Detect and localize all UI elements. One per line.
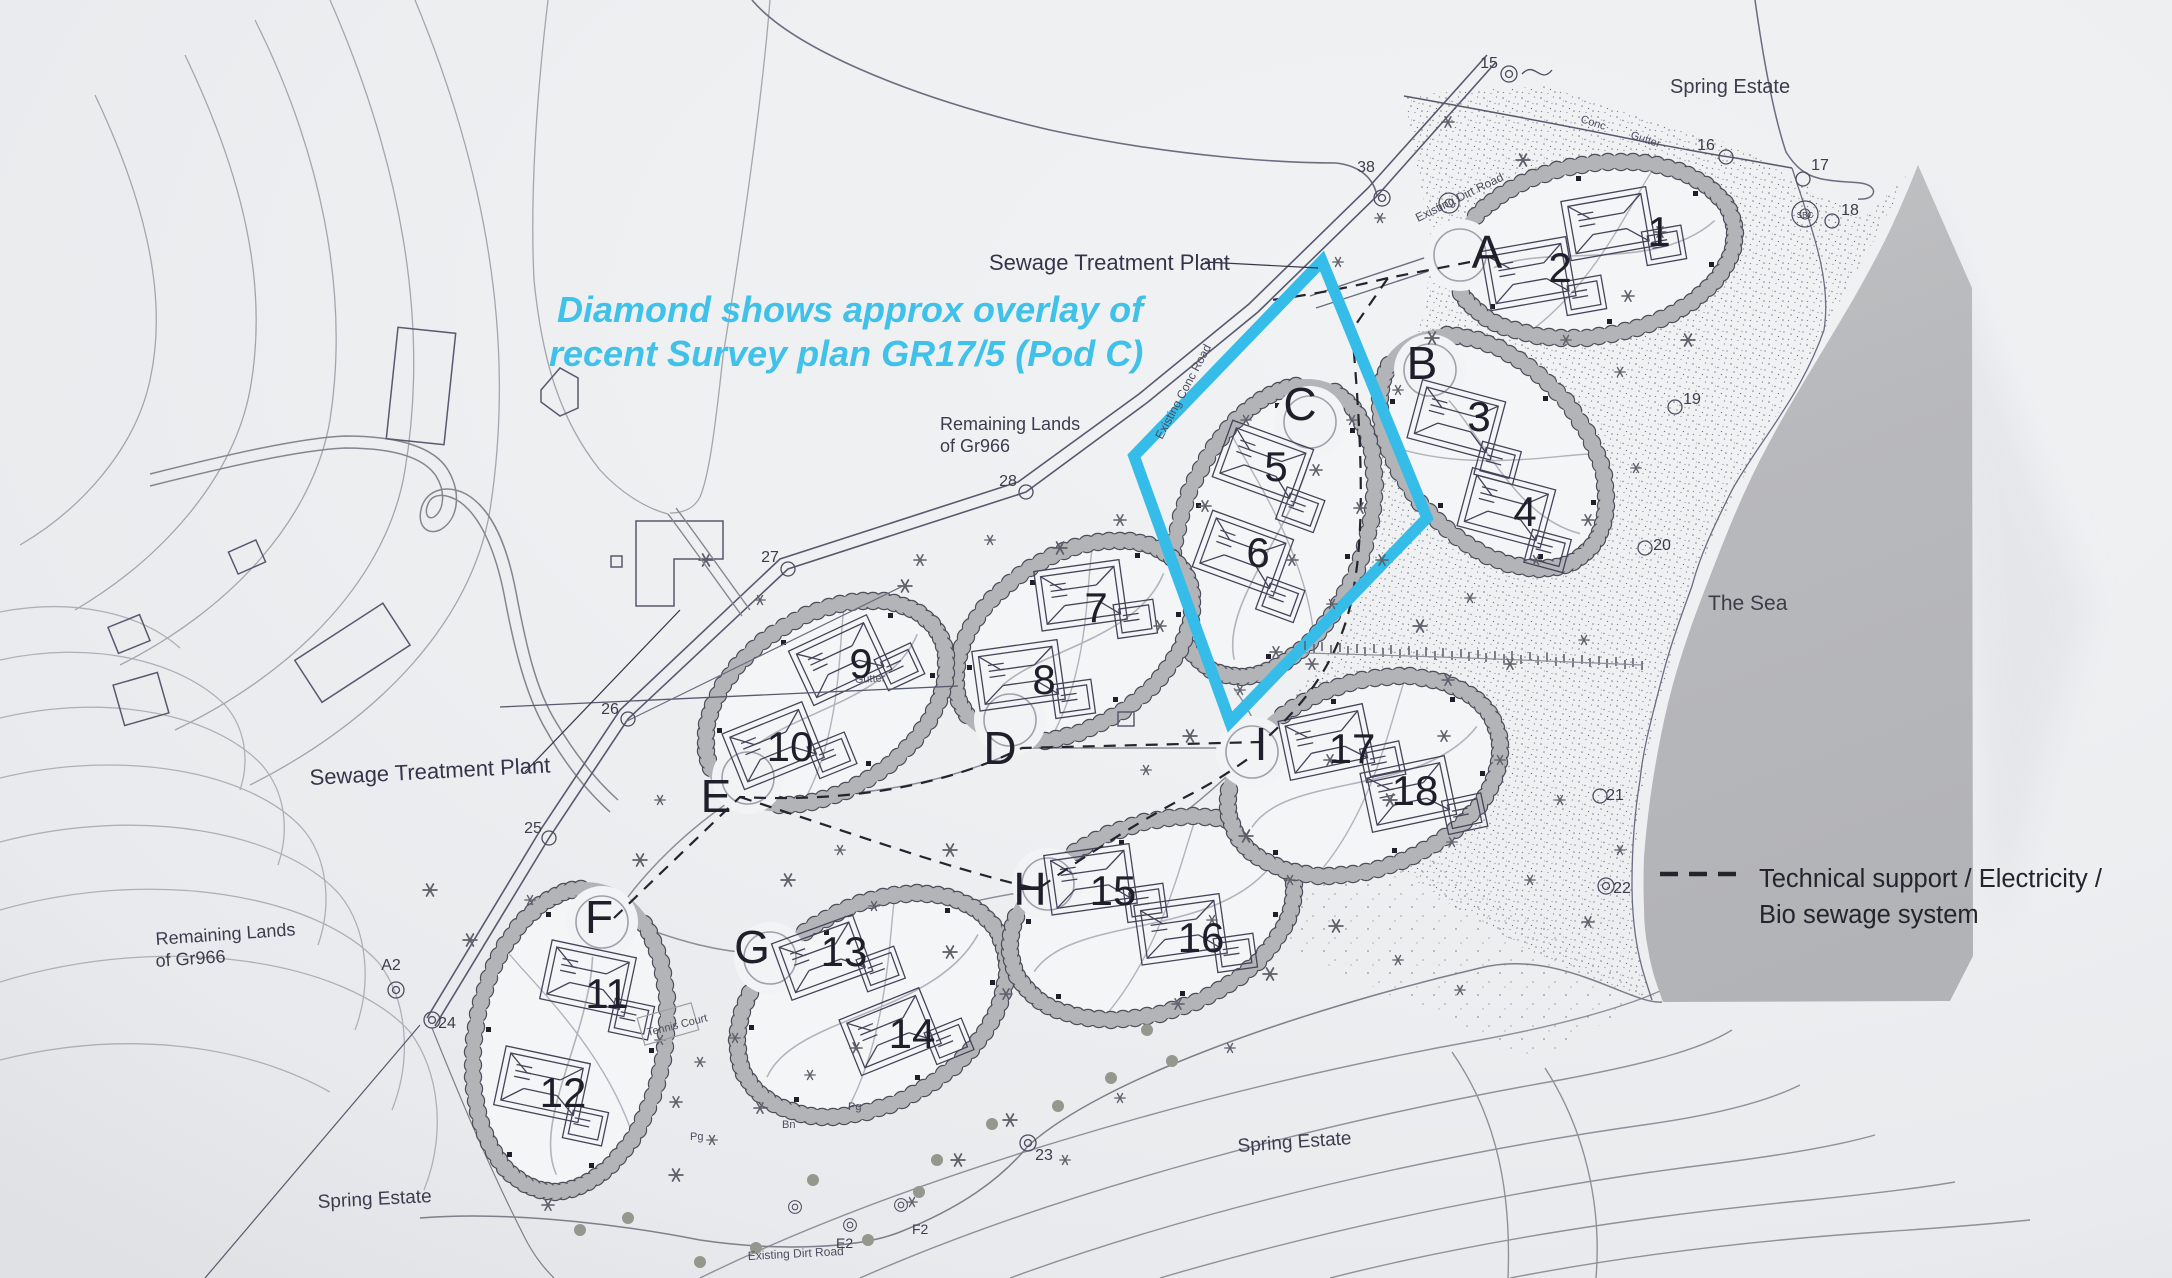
svg-text:D: D (983, 722, 1016, 774)
svg-text:E2: E2 (836, 1235, 853, 1251)
svg-text:H: H (1013, 863, 1046, 915)
svg-text:A: A (1472, 226, 1503, 278)
svg-text:F2: F2 (912, 1221, 929, 1237)
svg-text:20: 20 (1653, 537, 1671, 554)
svg-text:8: 8 (1032, 656, 1055, 703)
svg-text:28: 28 (999, 473, 1017, 490)
svg-text:Remaining Lands: Remaining Lands (940, 414, 1080, 434)
svg-text:2: 2 (1548, 244, 1571, 291)
svg-text:1: 1 (1647, 208, 1670, 255)
svg-text:Bn: Bn (782, 1119, 795, 1131)
svg-text:15: 15 (1090, 867, 1137, 914)
svg-text:38: 38 (1357, 159, 1375, 176)
svg-text:recent Survey plan GR17/5 (Po: recent Survey plan GR17/5 (Pod C) (549, 333, 1143, 374)
svg-text:F: F (585, 891, 613, 943)
svg-text:I: I (1255, 718, 1268, 770)
svg-text:13: 13 (821, 928, 868, 975)
svg-text:Pg: Pg (690, 1131, 703, 1143)
svg-text:23: 23 (1035, 1147, 1053, 1164)
svg-text:27: 27 (761, 549, 779, 566)
svg-text:11: 11 (585, 970, 629, 1017)
svg-text:G: G (734, 921, 770, 973)
svg-text:Diamond shows approx overlay o: Diamond shows approx overlay of (557, 289, 1146, 330)
svg-text:18: 18 (1392, 767, 1439, 814)
svg-text:Technical support / Electricit: Technical support / Electricity / (1759, 865, 2103, 893)
svg-text:The Sea: The Sea (1708, 592, 1788, 615)
svg-text:15: 15 (1480, 55, 1498, 72)
svg-text:Pg: Pg (848, 1101, 861, 1113)
svg-text:26: 26 (601, 701, 619, 718)
svg-text:18: 18 (1841, 202, 1859, 219)
svg-text:10: 10 (767, 723, 814, 770)
svg-text:Sewage Treatment Plant: Sewage Treatment Plant (989, 250, 1230, 275)
svg-text:E: E (701, 770, 732, 822)
svg-text:17: 17 (1811, 157, 1829, 174)
svg-text:19: 19 (1683, 391, 1701, 408)
svg-text:16: 16 (1178, 914, 1225, 961)
svg-text:B: B (1407, 337, 1438, 389)
svg-text:3: 3 (1467, 393, 1490, 440)
svg-text:4: 4 (1513, 488, 1536, 535)
svg-text:12: 12 (540, 1069, 587, 1116)
svg-text:A2: A2 (381, 957, 401, 974)
svg-text:Bio sewage system: Bio sewage system (1759, 901, 1979, 929)
svg-text:SBC: SBC (1797, 211, 1814, 220)
svg-text:17: 17 (1329, 725, 1376, 772)
svg-text:7: 7 (1084, 584, 1107, 631)
svg-text:of Gr966: of Gr966 (940, 436, 1010, 456)
svg-text:C: C (1283, 378, 1316, 430)
svg-text:6: 6 (1246, 529, 1269, 576)
svg-text:5: 5 (1264, 443, 1287, 490)
svg-text:21: 21 (1606, 787, 1624, 804)
svg-text:9: 9 (849, 640, 872, 687)
svg-text:22: 22 (1613, 880, 1631, 897)
svg-text:Spring Estate: Spring Estate (1670, 76, 1790, 98)
svg-text:14: 14 (889, 1010, 936, 1057)
svg-text:25: 25 (524, 820, 542, 837)
svg-text:24: 24 (438, 1015, 456, 1032)
svg-text:16: 16 (1697, 137, 1715, 154)
